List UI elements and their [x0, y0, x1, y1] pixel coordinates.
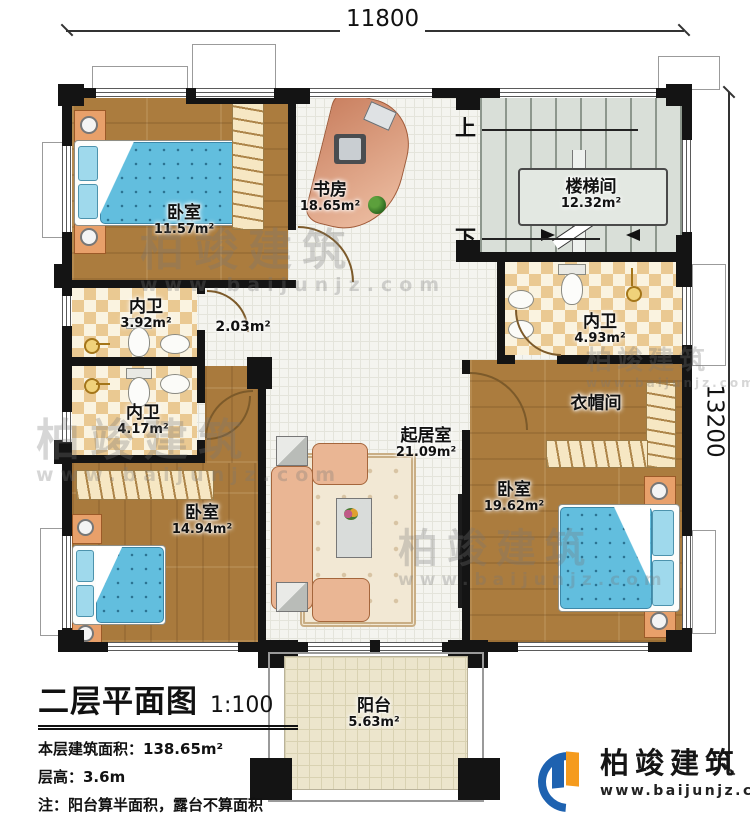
- room-area: 19.62m²: [484, 500, 544, 515]
- window: [62, 536, 72, 628]
- logo-building-orange: [566, 751, 579, 786]
- window: [682, 536, 692, 628]
- shower-head-icon: [626, 286, 642, 302]
- watermark: 柏竣建筑 www.baijunjz.com: [36, 418, 342, 486]
- room-label-bath-a: 内卫 3.92m²: [120, 298, 171, 332]
- watermark-name: 柏竣建筑: [140, 228, 446, 274]
- room-area: 4.93m²: [574, 332, 625, 347]
- shower-arm: [631, 268, 633, 286]
- lamp-icon: [650, 482, 668, 500]
- brand-website: www.baijunjz.com: [600, 783, 750, 799]
- pillow: [76, 550, 94, 582]
- room-label-balcony: 阳台 5.63m²: [348, 697, 399, 731]
- watermark-name: 柏竣建筑: [398, 528, 668, 570]
- sink-icon: [160, 374, 190, 394]
- lamp-icon: [80, 116, 98, 134]
- room-area: 21.09m²: [396, 446, 456, 461]
- brand-logo-icon: [538, 748, 590, 800]
- room-area: 2.03m²: [215, 320, 270, 336]
- corner-pier: [666, 84, 692, 106]
- shower-arm: [96, 343, 110, 345]
- lamp-icon: [80, 228, 98, 246]
- wall-pier: [247, 357, 272, 389]
- room-name: 内卫: [120, 298, 171, 317]
- corner-pier: [58, 84, 84, 106]
- right-dimension-label: 13200: [702, 378, 728, 463]
- room-area: 3.92m²: [120, 317, 171, 332]
- brand-name: 柏竣建筑: [600, 749, 750, 778]
- interior-wall: [497, 355, 515, 364]
- stair-down-line: [482, 238, 600, 240]
- shower-head-icon: [84, 338, 100, 354]
- top-dimension-label: 11800: [340, 6, 425, 32]
- wardrobe: [232, 100, 264, 230]
- room-area: 14.94m²: [172, 523, 232, 538]
- room-name: 卧室: [154, 204, 214, 223]
- bay-window-outline: [192, 44, 276, 90]
- bay-window-outline: [92, 66, 188, 90]
- flower-decor: [344, 508, 358, 520]
- room-area: 12.32m²: [561, 197, 621, 212]
- interior-wall: [197, 330, 205, 360]
- plan-title: 二层平面图: [38, 676, 198, 721]
- logo-building-blue: [552, 755, 564, 788]
- lamp-icon: [77, 519, 94, 536]
- watermark: 柏竣建筑 www.baijunjz.com: [398, 528, 668, 590]
- pillow: [78, 184, 98, 219]
- window: [96, 88, 186, 98]
- lamp-icon: [650, 612, 668, 630]
- window: [62, 296, 72, 326]
- floor-area-line: 本层建筑面积：138.65m²: [38, 738, 298, 759]
- title-block: 二层平面图 1:100 本层建筑面积：138.65m² 层高：3.6m 注：阳台…: [38, 676, 298, 815]
- room-name: 楼梯间: [561, 178, 621, 197]
- room-label-bath-c: 内卫 4.93m²: [574, 313, 625, 347]
- room-name: 阳台: [348, 697, 399, 716]
- room-name: 内卫: [574, 313, 625, 332]
- hall-area-label: 2.03m²: [215, 320, 270, 336]
- interior-wall: [62, 357, 205, 366]
- watermark-url: www.baijunjz.com: [140, 276, 446, 296]
- window-sill: [692, 530, 716, 634]
- window: [62, 146, 72, 232]
- shower-arm: [96, 383, 110, 385]
- window: [518, 642, 648, 652]
- room-label-bedroom-bottom-right: 卧室 19.62m²: [484, 481, 544, 515]
- window: [196, 88, 274, 98]
- room-label-stairwell: 楼梯间 12.32m²: [561, 178, 621, 212]
- balcony-column: [458, 758, 500, 800]
- stair-up-label: 上: [455, 112, 476, 142]
- coffee-table: [336, 498, 372, 558]
- plan-scale: 1:100: [210, 693, 273, 718]
- window: [108, 642, 238, 652]
- right-dimension-line: [728, 92, 730, 770]
- floor-height-line: 层高：3.6m: [38, 766, 298, 787]
- corner-pier: [58, 630, 84, 652]
- interior-wall: [497, 262, 505, 360]
- room-name: 书房: [300, 181, 360, 200]
- interior-wall: [197, 357, 205, 403]
- window-sill: [40, 528, 64, 636]
- watermark-name: 柏竣建筑: [36, 418, 342, 464]
- window: [310, 88, 432, 98]
- watermark-url: www.baijunjz.com: [36, 466, 342, 486]
- watermark-url: www.baijunjz.com: [398, 572, 668, 590]
- room-name: 卧室: [484, 481, 544, 500]
- closet-rack: [546, 440, 648, 468]
- window: [682, 287, 692, 345]
- closet-rack: [646, 382, 676, 468]
- room-name: 衣帽间: [571, 394, 622, 413]
- plant-icon: [368, 196, 386, 214]
- room-area: 18.65m²: [300, 200, 360, 215]
- window: [682, 140, 692, 232]
- note-line: 注：阳台算半面积，露台不算面积: [38, 794, 298, 815]
- window: [500, 88, 656, 98]
- room-name: 起居室: [396, 427, 456, 446]
- wall-pier: [456, 240, 480, 262]
- brand-logo: 柏竣建筑 www.baijunjz.com: [538, 748, 750, 800]
- watermark-name: 柏竣建筑: [586, 348, 750, 375]
- pillow: [76, 585, 94, 617]
- wall-pier: [676, 235, 692, 287]
- room-label-bedroom-bottom-left: 卧室 14.94m²: [172, 504, 232, 538]
- room-label-study: 书房 18.65m²: [300, 181, 360, 215]
- watermark: 柏竣建筑 www.baijunjz.com: [140, 228, 446, 296]
- room-name: 卧室: [172, 504, 232, 523]
- bed-sheet-fold: [96, 547, 126, 621]
- window-sill: [42, 142, 64, 238]
- side-table: [276, 582, 308, 612]
- bed-sheet-fold: [100, 142, 146, 222]
- shower-head-icon: [84, 378, 100, 394]
- watermark: 柏竣建筑 www.baijunjz.com: [586, 348, 750, 390]
- computer-screen: [339, 138, 361, 160]
- sink-icon: [508, 290, 534, 309]
- room-label-living: 起居室 21.09m²: [396, 427, 456, 461]
- room-area: 5.63m²: [348, 716, 399, 731]
- pillow: [78, 146, 98, 181]
- watermark-url: www.baijunjz.com: [586, 377, 750, 390]
- stair-up-line: [482, 129, 638, 131]
- stair-direction-arrow: [626, 229, 640, 241]
- armchair: [312, 578, 370, 622]
- corner-pier: [666, 630, 692, 652]
- sink-icon: [160, 334, 190, 354]
- room-label-cloakroom: 衣帽间: [571, 394, 622, 413]
- toilet-icon: [561, 273, 583, 305]
- floor-plan-canvas: 11800 13200 楼梯间 12.32m² 上 下: [0, 0, 750, 821]
- interior-wall: [480, 252, 692, 262]
- interior-wall: [462, 360, 470, 374]
- wall-pier: [54, 264, 72, 288]
- interior-wall: [288, 98, 296, 230]
